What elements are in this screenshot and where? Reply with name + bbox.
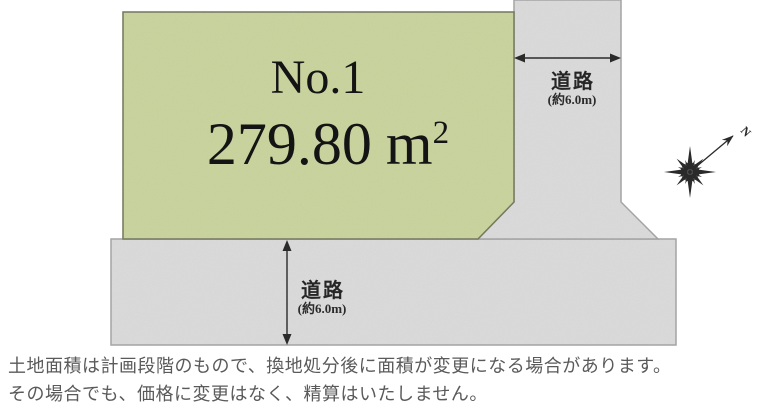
north-arrow-icon	[690, 132, 736, 173]
plot-number-label: No.1	[271, 52, 366, 105]
plot-area-unit: m2	[386, 111, 449, 177]
plot-area-value: 279.80	[207, 111, 372, 177]
plot-area-unit-exponent: 2	[433, 115, 450, 151]
plot-area-label: 279.80m2	[207, 114, 449, 174]
plot-area-unit-letter: m	[386, 111, 433, 177]
disclaimer: 土地面積は計画段階のもので、換地処分後に面積が変更になる場合があります。 その場…	[8, 352, 760, 408]
land-plot-diagram: N No.1 279.80m2 道路 (約6.0m) 道路 (約6.0m) 土地…	[0, 0, 760, 416]
disclaimer-line-1: 土地面積は計画段階のもので、換地処分後に面積が変更になる場合があります。	[8, 352, 760, 380]
road-bottom-width-note: (約6.0m)	[298, 298, 347, 317]
disclaimer-line-2: その場合でも、価格に変更はなく、精算はいたしません。	[8, 380, 760, 408]
compass-north-label: N	[738, 124, 754, 140]
road-right-width-note: (約6.0m)	[548, 89, 597, 108]
compass-rose: N	[664, 124, 754, 198]
compass-center-dot	[688, 170, 691, 173]
